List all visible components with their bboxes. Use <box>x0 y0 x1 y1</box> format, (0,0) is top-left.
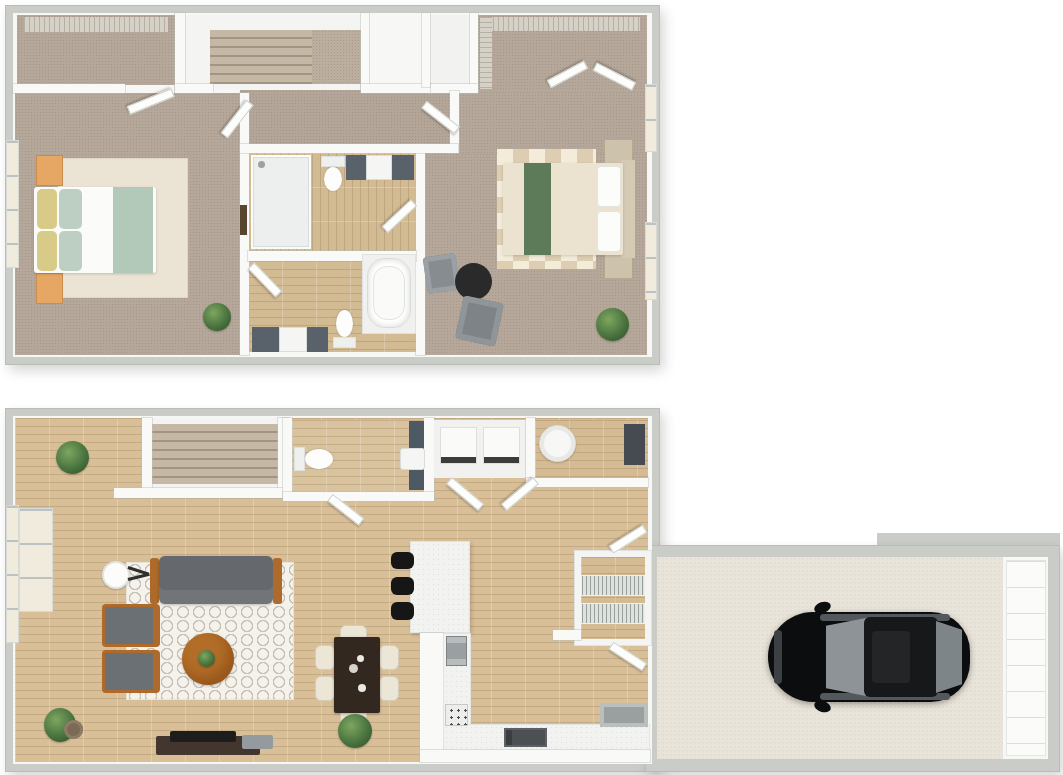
cooktop <box>504 728 547 747</box>
kitchen-island <box>410 541 470 633</box>
bedroom2-plant <box>596 308 629 341</box>
sofa <box>159 556 273 604</box>
bedroom2-bed-runner <box>524 163 551 255</box>
bar-stool-2 <box>391 577 414 595</box>
wall <box>526 418 535 480</box>
table-setting-2 <box>349 664 358 673</box>
wall <box>283 418 292 500</box>
range <box>445 704 468 726</box>
wall <box>114 488 286 498</box>
wire-shelf-1 <box>581 575 645 596</box>
wall <box>416 144 425 355</box>
pocket-door <box>240 205 247 235</box>
wall <box>553 630 581 640</box>
wall <box>422 13 430 87</box>
entry-bench <box>600 703 648 727</box>
master-toilet-bowl <box>324 167 342 191</box>
shower <box>251 155 311 249</box>
wall <box>175 13 185 92</box>
media-component <box>242 735 273 749</box>
master-vanity-counter-left <box>346 155 366 180</box>
wire-shelf-2 <box>581 603 645 624</box>
powder-sink <box>400 448 425 470</box>
wall <box>526 478 648 487</box>
hall-vanity-counter-left <box>252 327 279 352</box>
bedroom2-window-1 <box>645 84 657 152</box>
hall-vanity-sink <box>279 327 307 352</box>
bedroom2-chair-1 <box>423 253 461 294</box>
powder-toilet-bowl <box>305 449 333 469</box>
living-plant-pot <box>64 720 83 739</box>
bedroom2-closet-rod-side <box>480 17 492 89</box>
master-bed-runner <box>113 187 153 273</box>
master-plant <box>203 303 231 331</box>
staircase-upper <box>210 30 312 84</box>
upper-hallway-floor <box>240 90 458 144</box>
master-toilet-tank <box>321 156 345 167</box>
bedroom2-round-table <box>455 263 492 300</box>
wall <box>283 492 434 501</box>
armchair-1 <box>105 607 153 644</box>
master-pillow-green-1 <box>59 189 82 229</box>
hall-toilet-tank <box>333 337 356 348</box>
entry-closet-interior <box>581 557 645 639</box>
master-pillow-green-2 <box>59 231 82 271</box>
wall <box>240 144 458 153</box>
kitchen-sink <box>446 636 467 666</box>
bathtub-basin <box>373 266 405 320</box>
car-sunroof <box>872 631 910 683</box>
powder-toilet-tank <box>294 447 305 471</box>
bar-stool-3 <box>391 602 414 620</box>
stair-carpet-upper <box>312 30 361 84</box>
car-rear-window <box>936 621 962 693</box>
bedroom2-window-2 <box>645 222 657 300</box>
master-pillow-yellow-1 <box>37 189 57 229</box>
dining-chair-left-2 <box>315 676 335 701</box>
shower-head <box>258 161 265 168</box>
water-heater <box>539 425 576 462</box>
dining-chair-right-1 <box>379 645 399 670</box>
table-setting-3 <box>358 684 366 692</box>
master-vanity-counter-right <box>392 155 414 180</box>
bedroom2-pillow-2 <box>597 211 621 252</box>
living-window-panes <box>19 508 53 612</box>
television <box>170 731 236 742</box>
hall-toilet-bowl <box>336 310 353 337</box>
living-window <box>6 505 19 643</box>
dryer <box>483 427 520 464</box>
table-setting-1 <box>357 655 364 662</box>
bedroom2-pillow-1 <box>597 166 621 207</box>
sofa-arm-right <box>273 558 282 604</box>
armchair-2 <box>105 653 153 690</box>
washer <box>440 427 477 464</box>
bar-stool-1 <box>391 552 414 569</box>
wall <box>361 84 431 93</box>
car-front-trim <box>774 630 782 684</box>
living-plant-top <box>56 441 89 474</box>
hall-closet-floor <box>430 15 470 87</box>
dining-chair-right-2 <box>379 676 399 701</box>
dining-plant <box>338 714 372 748</box>
wall <box>175 84 213 93</box>
master-nightstand-bottom <box>36 273 63 304</box>
sofa-arm-left <box>150 558 159 604</box>
master-closet-rod <box>24 17 168 32</box>
wall <box>361 13 369 92</box>
bedroom2-closet-rod <box>488 17 640 31</box>
master-window <box>6 140 19 268</box>
wall <box>142 418 152 492</box>
wall <box>420 633 443 758</box>
dining-table <box>334 637 380 713</box>
master-pillow-yellow-2 <box>37 231 57 271</box>
bedroom2-headboard <box>621 160 635 258</box>
car-windshield <box>826 618 866 696</box>
hall-vanity-counter-right <box>307 327 328 352</box>
master-vanity-sink <box>366 155 392 180</box>
dining-chair-left-1 <box>315 645 335 670</box>
wall <box>420 750 650 762</box>
wall <box>424 418 434 500</box>
furnace <box>624 424 645 465</box>
garage-door <box>1006 560 1046 756</box>
wall <box>13 84 125 93</box>
floor-plan-canvas <box>0 0 1063 775</box>
staircase-lower <box>152 424 278 484</box>
wall <box>470 13 478 91</box>
coffee-table-plant <box>198 650 215 667</box>
floor-lamp <box>102 561 130 589</box>
master-nightstand-top <box>36 155 63 186</box>
